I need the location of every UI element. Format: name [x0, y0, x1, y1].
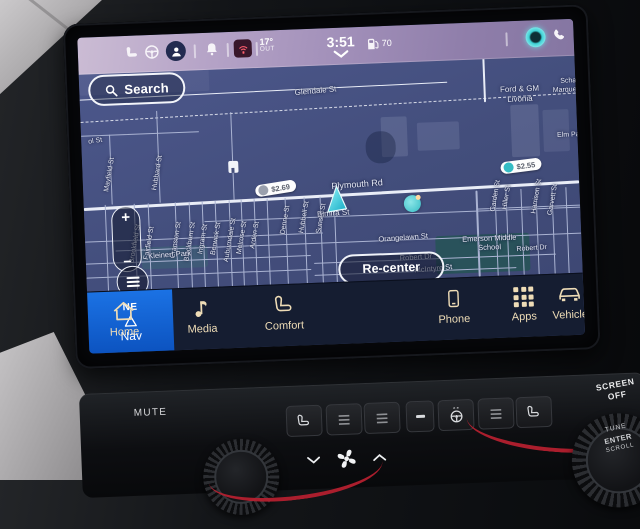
map-road: [227, 43, 229, 57]
tab-phone[interactable]: Phone: [431, 287, 476, 327]
voice-assistant-icon[interactable]: [525, 27, 546, 48]
apps-grid-icon: [513, 287, 534, 308]
center-console: Glendale StFord & GMLivoniaSchaMarquetEl…: [30, 0, 640, 501]
bell-icon[interactable]: [204, 41, 221, 58]
street-label: Harrison St: [530, 178, 543, 214]
zoom-control[interactable]: + −: [111, 206, 143, 273]
street-label: Garvett St: [547, 184, 559, 216]
street-label: Arden St: [249, 221, 261, 249]
street-label: Hubbell St: [298, 201, 310, 234]
street-label: Scha: [560, 77, 576, 85]
clock[interactable]: 3:51: [315, 33, 366, 51]
vehicle-location-arrow: [322, 184, 352, 216]
chevron-down-icon[interactable]: [332, 49, 350, 59]
street-label: Hubbard St: [151, 155, 164, 191]
street-label: Garden St: [489, 180, 501, 213]
heated-seat-left-button[interactable]: [286, 405, 323, 437]
vent-grille-icon: [336, 412, 353, 427]
seat-icon[interactable]: [125, 45, 141, 61]
street-label: Glendale St: [294, 84, 336, 97]
phone-signal-icon: [236, 42, 249, 55]
vent-grille-icon: [374, 411, 391, 426]
street-label: Livonia: [507, 94, 533, 104]
street-label: Auburndale St: [223, 218, 237, 263]
mute-label: MUTE: [134, 407, 168, 419]
fuel-pump-icon: [365, 36, 380, 52]
tab-media[interactable]: Media: [179, 296, 224, 336]
heated-seat-icon: [296, 413, 313, 430]
heated-steering-wheel-icon: [447, 406, 465, 424]
infotainment-screen: Glendale StFord & GMLivoniaSchaMarquetEl…: [77, 19, 585, 354]
street-label: Ingram St: [197, 224, 209, 255]
street-label: Robert Dr: [516, 244, 547, 253]
gas-station-icon: [503, 162, 514, 173]
street-label: Elm Pa: [557, 131, 580, 139]
search-button[interactable]: Search: [88, 72, 186, 107]
street-label: ol St: [88, 137, 103, 146]
street-label: Marquet: [553, 86, 579, 94]
home-icon: [111, 300, 136, 323]
street-label: Hiller St: [501, 185, 512, 210]
hamburger-icon: [126, 276, 139, 278]
tab-apps[interactable]: Apps: [501, 284, 546, 324]
street-label: Orangelawn St: [378, 231, 428, 244]
street-label: Mayfield St: [103, 157, 116, 192]
person-icon: [169, 44, 182, 57]
map-road: [194, 44, 196, 58]
street-label: Denne St: [279, 205, 291, 235]
phone-handset-icon[interactable]: [551, 28, 568, 45]
map-road: [505, 32, 507, 46]
map-road: [256, 42, 258, 56]
vent-button[interactable]: [364, 402, 401, 434]
search-icon: [104, 83, 119, 98]
gas-station-icon: [258, 185, 269, 196]
navigation-map[interactable]: Glendale StFord & GMLivoniaSchaMarquetEl…: [79, 55, 583, 292]
music-note-icon: [190, 297, 213, 320]
zoom-in-button[interactable]: +: [121, 210, 130, 225]
phone-connectivity-tile[interactable]: [233, 39, 252, 58]
profile-avatar[interactable]: [165, 41, 186, 62]
street-label: Melrose St: [236, 221, 249, 255]
street-label: Ford & GM: [500, 84, 539, 94]
steering-wheel-icon[interactable]: [144, 44, 161, 61]
smartphone-icon: [443, 287, 464, 310]
seat-icon: [272, 294, 296, 317]
dash-button[interactable]: [405, 400, 434, 432]
street-label: School: [478, 242, 501, 252]
street-label: Berwick St: [210, 222, 223, 256]
vent-button[interactable]: [326, 403, 363, 435]
outside-temperature: 17° OUT: [259, 37, 275, 54]
minus-icon: [416, 415, 425, 418]
car-icon: [556, 283, 583, 306]
tab-home[interactable]: Home: [101, 299, 146, 339]
fuel-level: 70: [382, 38, 392, 48]
tab-comfort[interactable]: Comfort: [259, 293, 308, 333]
search-label: Search: [124, 80, 169, 97]
tab-vehicle[interactable]: Vehicle: [545, 282, 585, 322]
